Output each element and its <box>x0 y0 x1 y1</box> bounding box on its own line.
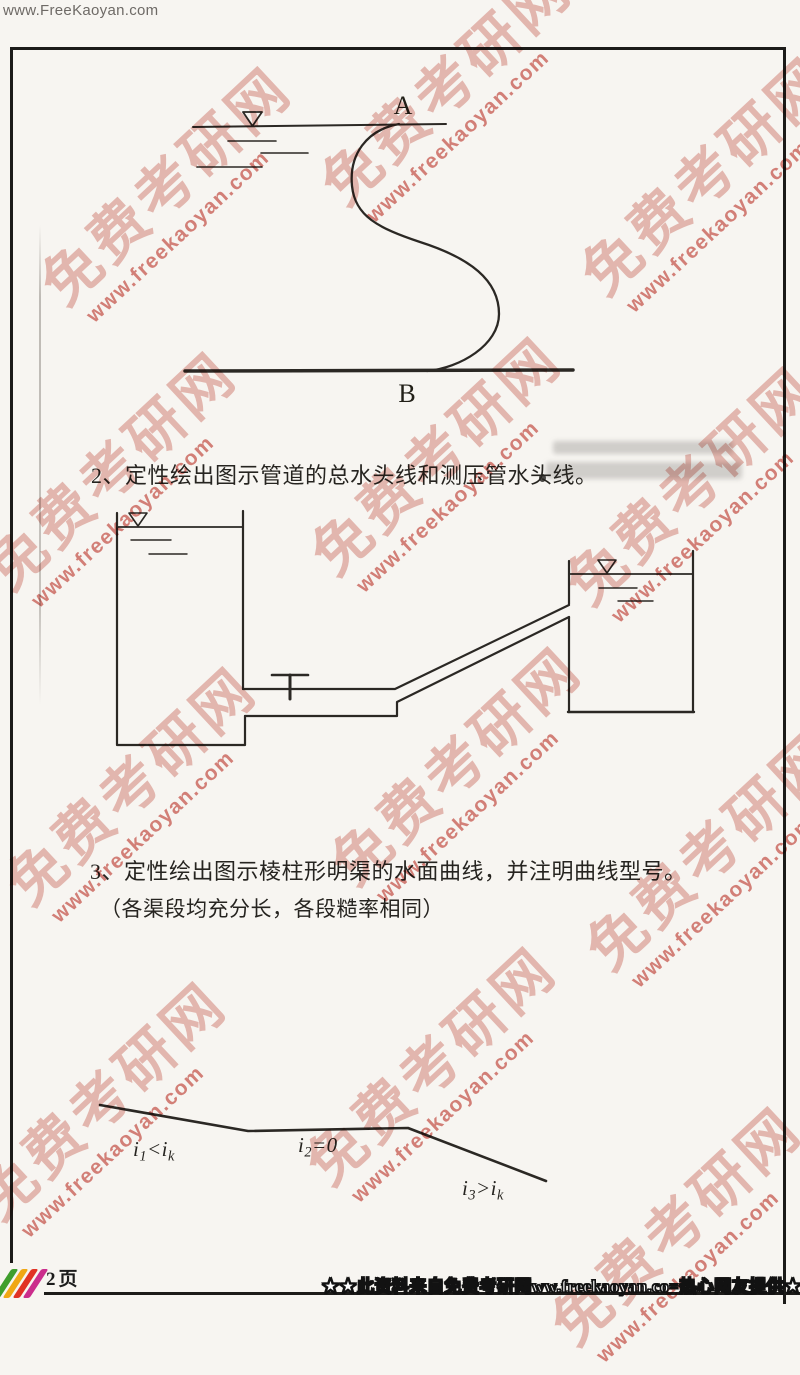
slope-symbol: > <box>476 1176 491 1200</box>
footer-banner-text: ★★此资料来自免费考研网ww.freekaoyan.co=热心网友提供★★ <box>322 1272 800 1297</box>
bleedthrough-smudge <box>553 441 733 454</box>
slope-label-1: i1<ik <box>133 1137 175 1165</box>
pipe-top-line <box>243 605 569 689</box>
slope-subscript: 2 <box>304 1144 312 1160</box>
slope-label-3: i3>ik <box>462 1176 504 1204</box>
slope-subscript: 1 <box>139 1148 147 1164</box>
slope-label-2: i2=0 <box>298 1133 338 1161</box>
slope-symbol: < <box>147 1137 162 1161</box>
question-3-text: 3、定性绘出图示棱柱形明渠的水面曲线，并注明曲线型号。 <box>90 854 687 886</box>
water-surface-symbol <box>129 513 147 526</box>
watermark-url-text: www.freekaoyan.com <box>627 811 800 993</box>
siphon-pipe-curve <box>352 124 499 371</box>
figure-pipeline <box>0 490 800 770</box>
point-b-label: B <box>398 379 415 408</box>
point-a-label: A <box>394 91 413 120</box>
figure-channel-profile <box>0 1080 800 1210</box>
slope-subscript: 3 <box>468 1187 476 1203</box>
question-3-note: （各渠段均充分长，各段糙率相同） <box>100 893 444 923</box>
ground-line <box>185 370 573 371</box>
slope-subscript: k <box>168 1148 175 1164</box>
question-2-text: 2、定性绘出图示管道的总水头线和测压管水头线。 <box>91 458 598 490</box>
water-surface-symbol <box>243 112 262 126</box>
pipe-bottom-line <box>245 617 569 716</box>
figure-siphon: A B <box>0 0 800 420</box>
slope-subscript: k <box>497 1187 504 1203</box>
water-surface-symbol <box>598 560 616 573</box>
page-number: 2页 <box>46 1264 81 1291</box>
freekaoyan-logo <box>2 1262 42 1298</box>
slope-symbol: =0 <box>312 1133 338 1157</box>
water-surface-line <box>193 124 446 127</box>
left-tank-walls <box>117 513 245 745</box>
